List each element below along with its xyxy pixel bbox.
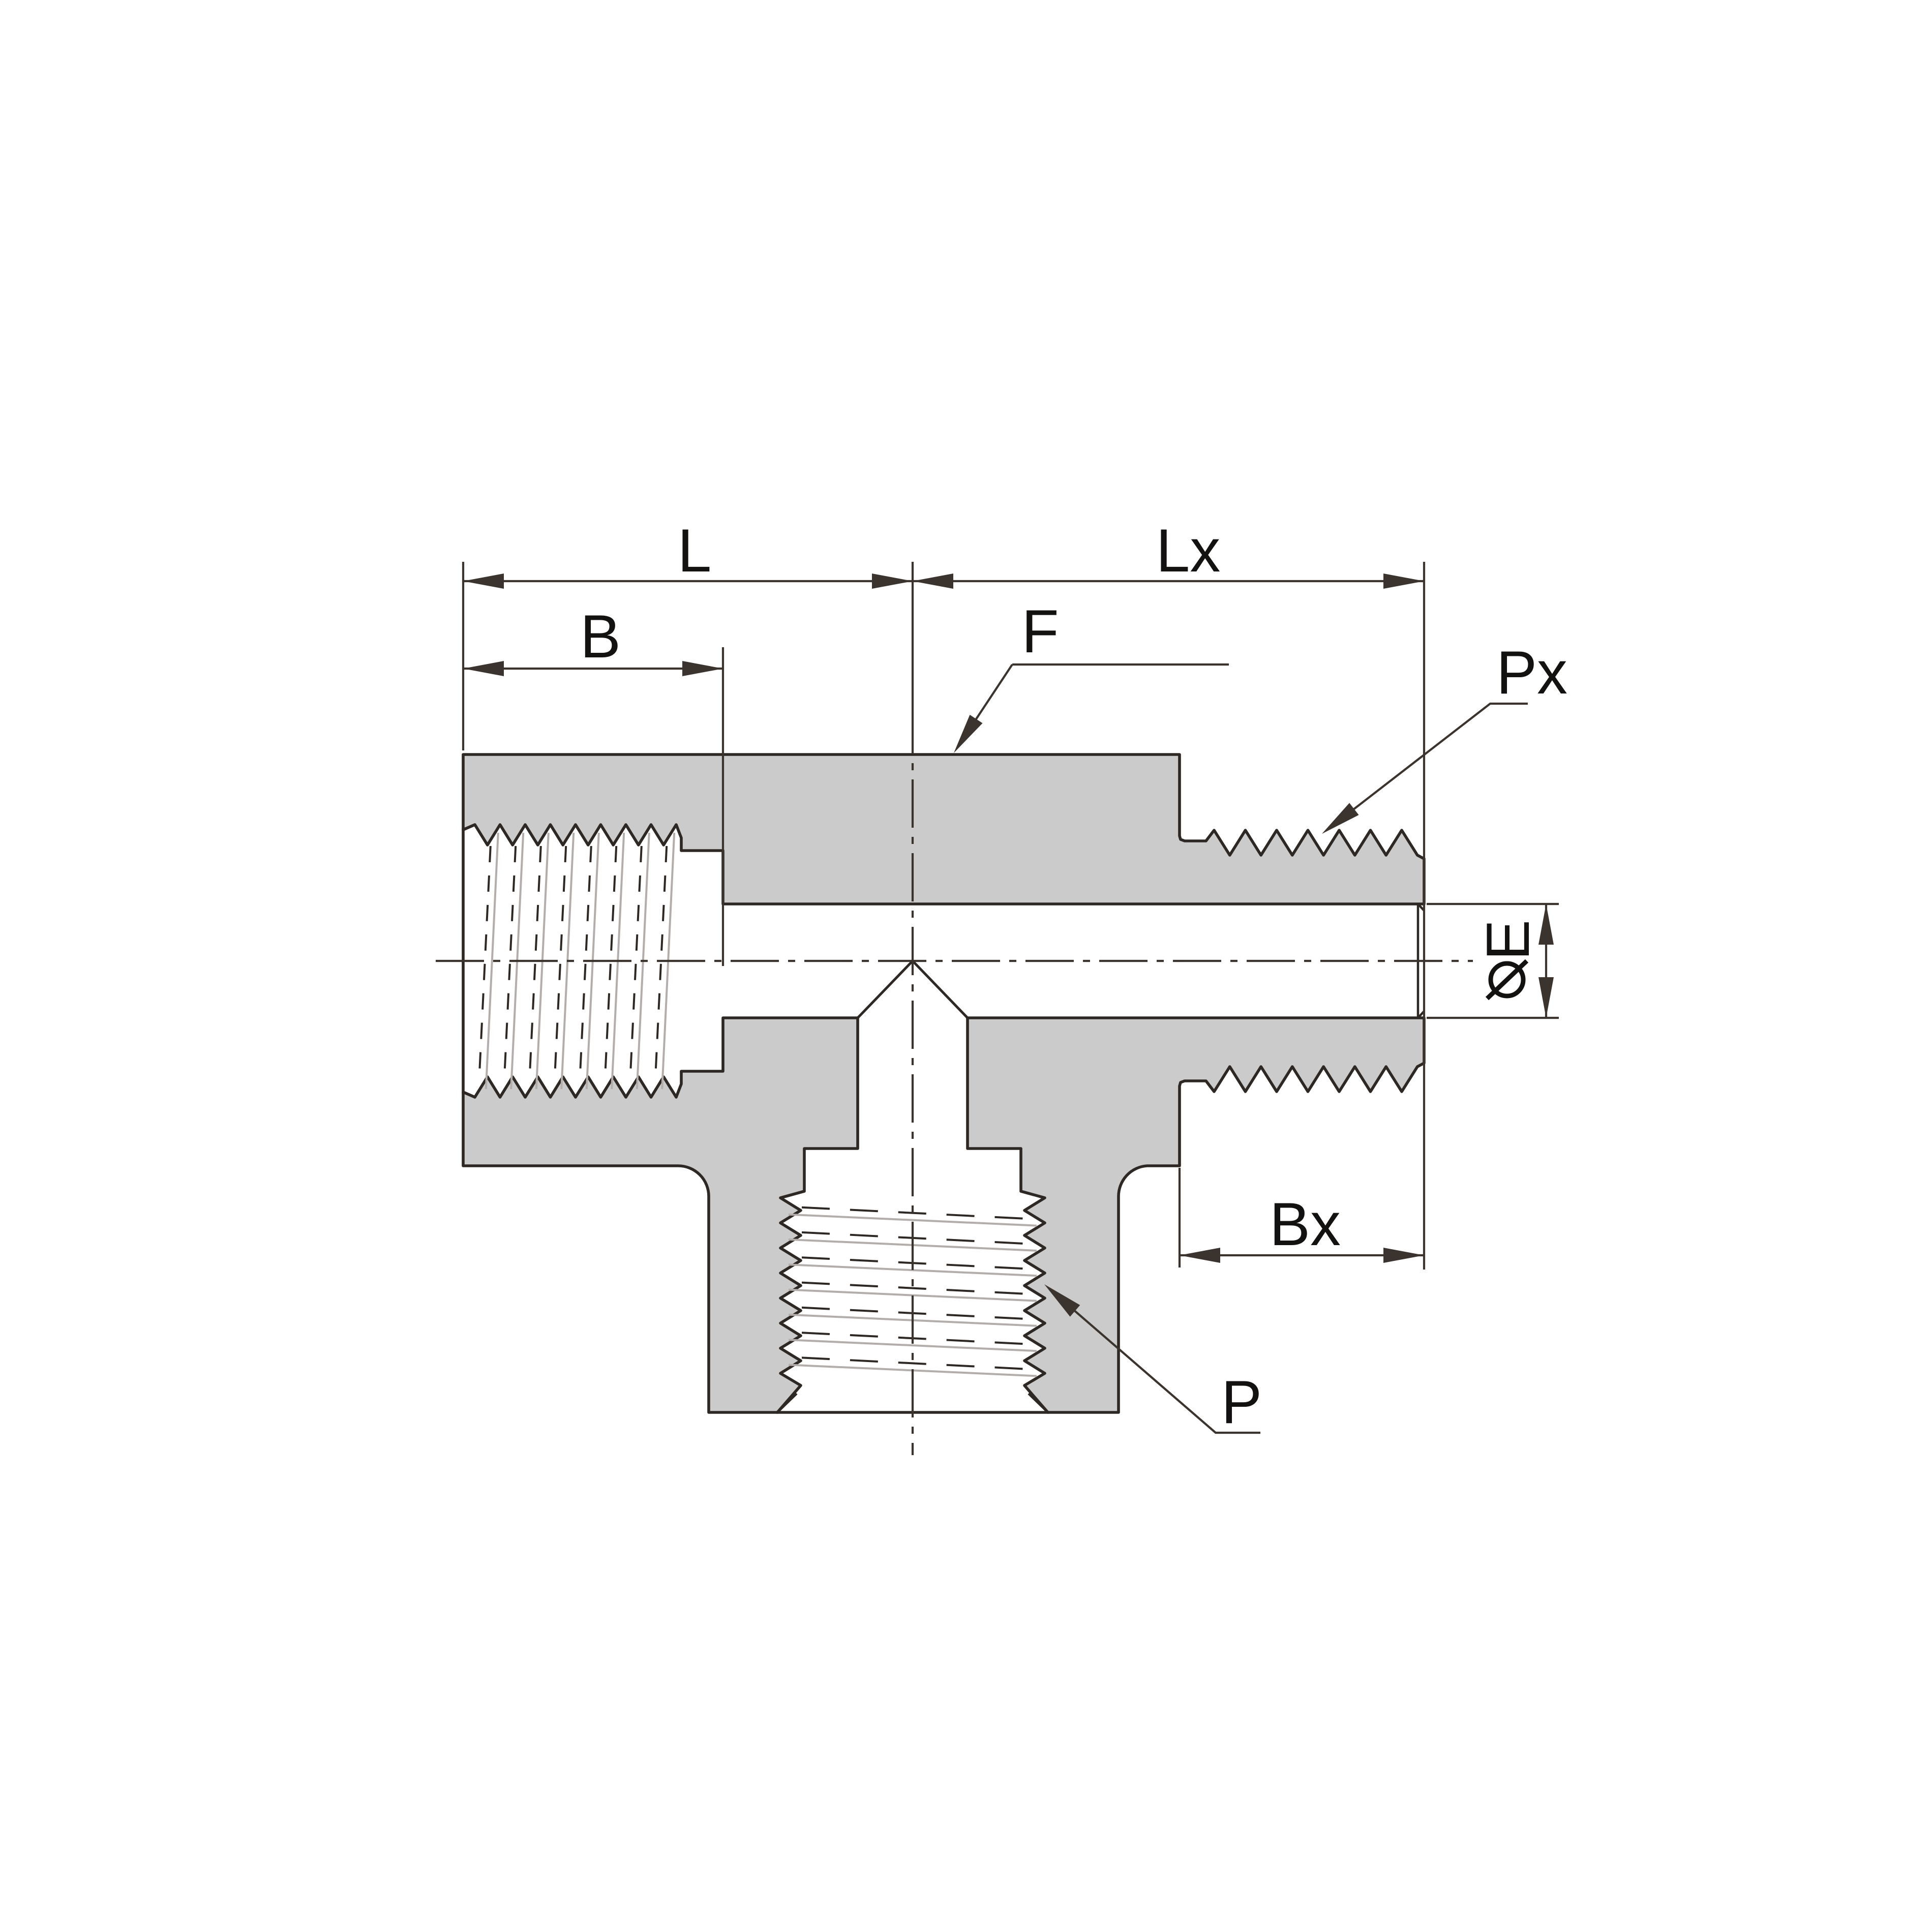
svg-text:Bx: Bx [1270, 1190, 1341, 1258]
svg-text:E: E [1474, 920, 1542, 960]
svg-text:B: B [580, 602, 621, 671]
svg-text:L: L [678, 517, 712, 585]
svg-text:Px: Px [1496, 639, 1567, 707]
svg-text:Lx: Lx [1156, 517, 1221, 585]
svg-text:F: F [1021, 597, 1059, 666]
svg-text:P: P [1221, 1368, 1262, 1436]
